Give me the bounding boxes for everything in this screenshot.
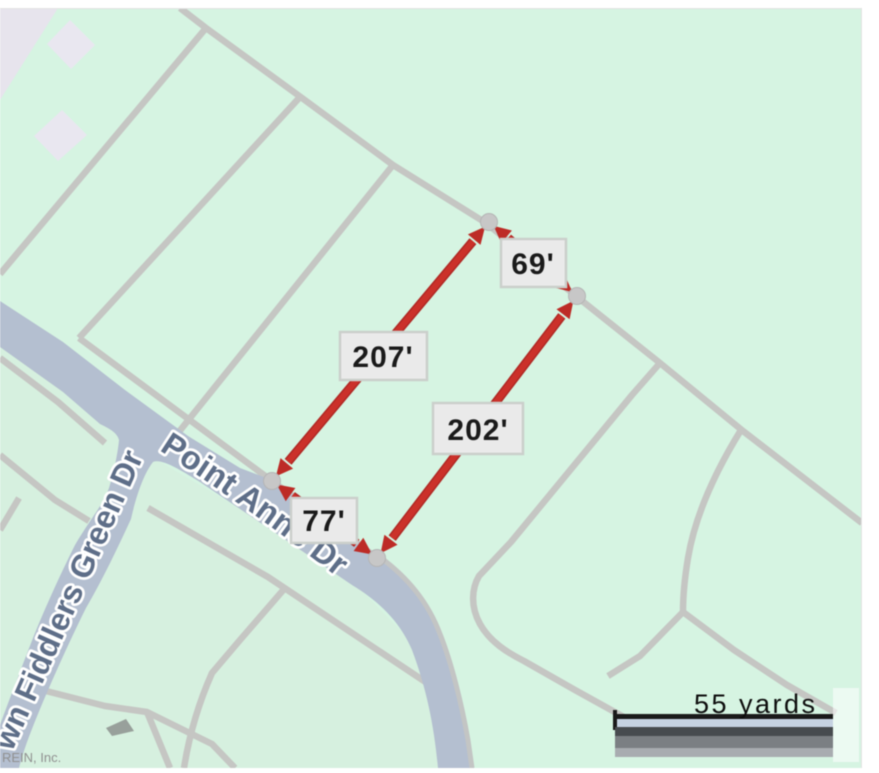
svg-text:55 yards: 55 yards <box>694 689 818 719</box>
svg-text:REIN, Inc.: REIN, Inc. <box>2 750 61 765</box>
svg-text:77': 77' <box>302 505 346 538</box>
svg-text:69': 69' <box>511 248 555 281</box>
svg-text:207': 207' <box>352 341 413 374</box>
svg-text:202': 202' <box>447 414 508 447</box>
